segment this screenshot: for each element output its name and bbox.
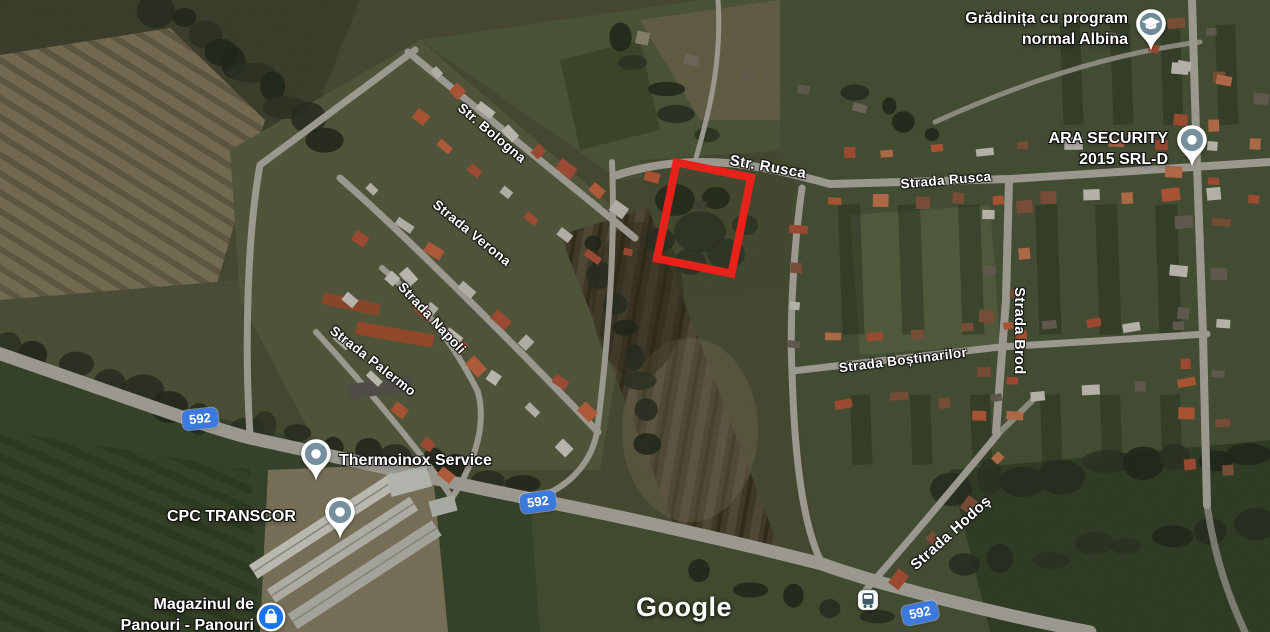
street-label-strada-rusca: Strada Rusca [900,169,992,192]
poi-thermoinox-line1: Thermoinox Service [339,450,492,471]
poi-cpc-line1: CPC TRANSCOR [167,506,296,527]
road-shield-592-mid: 592 [519,490,557,515]
street-label-hodos: Strada Hodoș [907,492,994,573]
google-watermark: Google [636,592,732,623]
street-label-bologna: Str. Bologna [455,100,529,166]
road-shield-592-south: 592 [900,600,939,627]
street-label-palermo: Strada Palermo [327,323,419,399]
road-shield-592-west: 592 [181,407,219,431]
place-pin-icon[interactable] [323,496,357,540]
poi-gradinita-line2: normal Albina [928,29,1128,50]
place-pin-icon[interactable] [299,438,333,482]
poi-magazinul-label[interactable]: Magazinul de Panouri - Panouri [106,594,254,632]
map-canvas[interactable]: Str. Bologna Strada Verona Strada Napoli… [0,0,1270,632]
poi-magazinul-line2: Panouri - Panouri [106,615,254,632]
poi-cpc-transcor-label[interactable]: CPC TRANSCOR [167,506,296,527]
poi-magazinul-line1: Magazinul de [106,594,254,615]
poi-gradinita-label[interactable]: Grădinița cu program normal Albina [928,8,1128,50]
street-label-napoli: Strada Napoli [395,279,469,357]
poi-gradinita-line1: Grădinița cu program [928,8,1128,29]
poi-thermoinox-label[interactable]: Thermoinox Service [339,450,492,471]
school-pin-icon[interactable] [1134,8,1168,52]
street-label-str-rusca: Str. Rusca [728,152,807,182]
poi-ara-line2: 2015 SRL-D [1000,149,1168,170]
bus-stop-icon[interactable] [857,589,879,611]
poi-ara-security-label[interactable]: ARA SECURITY 2015 SRL-D [1000,128,1168,170]
street-label-bostinarilor: Strada Boștinarilor [838,345,968,376]
street-label-brod: Strada Brod [1011,287,1027,374]
shopping-pin-icon[interactable] [256,602,286,632]
street-label-verona: Strada Verona [430,197,514,269]
place-pin-icon[interactable] [1175,124,1209,168]
poi-ara-line1: ARA SECURITY [1000,128,1168,149]
